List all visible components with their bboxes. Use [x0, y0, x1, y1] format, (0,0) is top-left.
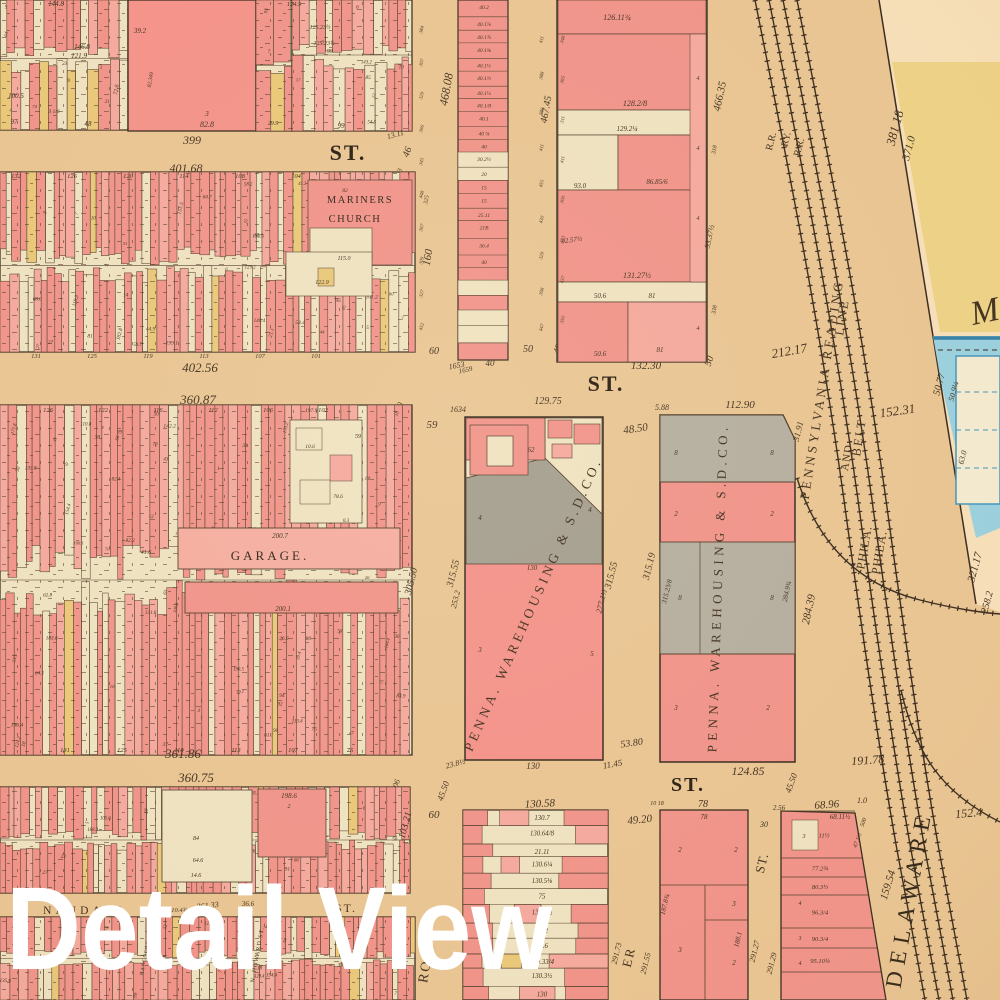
svg-text:4: 4 — [588, 506, 592, 514]
svg-text:40.1⅔: 40.1⅔ — [477, 75, 492, 82]
svg-text:130: 130 — [526, 761, 540, 771]
svg-text:38: 38 — [93, 435, 100, 441]
svg-text:60: 60 — [429, 346, 439, 357]
svg-text:10: 10 — [91, 217, 96, 222]
svg-text:6: 6 — [363, 806, 366, 812]
svg-text:125.23½: 125.23½ — [310, 24, 332, 31]
svg-text:40.1: 40.1 — [479, 115, 489, 122]
svg-text:40.1½: 40.1½ — [477, 62, 491, 69]
svg-text:146.8: 146.8 — [74, 43, 90, 51]
svg-text:40.1⅝: 40.1⅝ — [477, 47, 491, 54]
svg-text:4: 4 — [697, 75, 700, 82]
svg-text:23: 23 — [62, 62, 67, 67]
svg-text:93.0: 93.0 — [574, 182, 587, 190]
svg-text:6: 6 — [356, 4, 359, 10]
svg-text:399: 399 — [182, 133, 201, 147]
svg-text:3: 3 — [731, 900, 736, 908]
svg-text:75: 75 — [311, 726, 317, 732]
svg-text:81: 81 — [87, 334, 93, 340]
svg-text:3: 3 — [673, 704, 678, 712]
svg-text:114: 114 — [179, 173, 189, 180]
svg-text:131.6: 131.6 — [145, 610, 157, 616]
svg-text:70: 70 — [105, 547, 110, 552]
svg-text:33: 33 — [242, 444, 247, 449]
svg-text:120: 120 — [123, 173, 134, 180]
svg-text:ST.: ST. — [330, 140, 367, 165]
svg-text:4: 4 — [697, 145, 700, 152]
svg-text:2: 2 — [732, 959, 736, 967]
svg-text:92: 92 — [277, 702, 283, 708]
svg-text:3: 3 — [802, 834, 806, 840]
svg-text:48: 48 — [85, 120, 93, 128]
svg-text:74: 74 — [32, 104, 37, 109]
svg-text:131: 131 — [60, 747, 70, 754]
svg-text:41.6: 41.6 — [141, 549, 152, 556]
svg-text:130: 130 — [527, 564, 538, 572]
svg-text:130.58: 130.58 — [524, 797, 555, 811]
svg-text:40: 40 — [481, 259, 487, 266]
svg-text:37: 37 — [296, 78, 301, 83]
svg-text:ST.: ST. — [588, 371, 625, 396]
svg-text:41.3: 41.3 — [298, 182, 307, 187]
svg-text:40.2: 40.2 — [479, 4, 489, 11]
svg-text:99: 99 — [117, 430, 123, 436]
svg-text:113: 113 — [231, 747, 241, 754]
svg-text:97: 97 — [11, 118, 19, 126]
svg-text:107: 107 — [255, 353, 266, 360]
svg-text:4: 4 — [799, 960, 802, 967]
svg-text:40.1¾: 40.1¾ — [477, 34, 491, 41]
svg-text:51: 51 — [123, 241, 128, 246]
svg-text:188.3: 188.3 — [87, 828, 99, 833]
svg-text:3: 3 — [204, 110, 209, 118]
svg-text:68.11½: 68.11½ — [830, 813, 851, 821]
svg-text:86.85/6: 86.85/6 — [646, 178, 668, 186]
svg-text:190.5: 190.5 — [233, 667, 244, 672]
svg-text:58.2: 58.2 — [244, 182, 253, 187]
svg-text:82.4: 82.4 — [112, 477, 121, 482]
svg-text:30: 30 — [759, 820, 768, 829]
svg-text:2: 2 — [674, 510, 678, 518]
svg-text:15: 15 — [481, 185, 487, 191]
svg-text:79.1: 79.1 — [236, 689, 244, 694]
svg-text:30.2½: 30.2½ — [476, 156, 491, 163]
svg-text:40: 40 — [486, 358, 496, 368]
svg-text:102: 102 — [318, 407, 329, 414]
svg-text:197.9: 197.9 — [305, 408, 318, 414]
svg-text:140.4: 140.4 — [254, 317, 266, 324]
svg-text:26.6: 26.6 — [279, 636, 289, 642]
svg-text:131: 131 — [31, 353, 41, 360]
svg-text:40.1¼: 40.1¼ — [477, 90, 491, 97]
svg-text:115.0: 115.0 — [337, 256, 350, 262]
svg-text:152.4: 152.4 — [955, 805, 983, 821]
svg-text:8: 8 — [674, 449, 678, 457]
svg-text:27: 27 — [48, 340, 54, 346]
svg-text:5.88: 5.88 — [655, 403, 669, 412]
svg-text:80.3½: 80.3½ — [812, 884, 828, 891]
svg-text:106: 106 — [263, 407, 274, 414]
svg-text:44.9: 44.9 — [146, 325, 156, 332]
svg-text:84.7: 84.7 — [203, 195, 212, 200]
svg-text:40: 40 — [481, 144, 487, 151]
svg-text:3: 3 — [677, 946, 682, 954]
svg-text:2.56: 2.56 — [773, 804, 786, 812]
svg-text:196.4: 196.4 — [11, 721, 24, 728]
svg-text:15: 15 — [481, 199, 487, 205]
svg-text:56: 56 — [337, 629, 342, 634]
svg-text:125: 125 — [117, 747, 128, 754]
svg-text:6: 6 — [225, 267, 228, 273]
svg-text:60: 60 — [429, 809, 441, 821]
svg-text:30: 30 — [395, 635, 400, 640]
svg-text:2: 2 — [770, 510, 774, 518]
svg-text:198.6: 198.6 — [281, 792, 297, 800]
svg-text:77.2¾: 77.2¾ — [812, 866, 828, 873]
svg-text:21: 21 — [105, 99, 111, 105]
svg-text:1: 1 — [217, 467, 220, 472]
svg-text:361.86: 361.86 — [164, 746, 201, 761]
svg-text:68.6: 68.6 — [33, 296, 42, 302]
svg-text:82: 82 — [342, 188, 348, 194]
svg-text:142.2: 142.2 — [163, 422, 176, 429]
svg-text:90.3/4: 90.3/4 — [812, 936, 829, 943]
svg-text:64.3: 64.3 — [35, 672, 44, 677]
svg-text:62: 62 — [528, 446, 536, 454]
svg-text:100.5: 100.5 — [8, 92, 24, 100]
svg-text:80: 80 — [306, 636, 312, 642]
svg-text:ST.: ST. — [671, 774, 705, 796]
svg-text:0.3: 0.3 — [343, 519, 350, 524]
svg-text:130.64/8: 130.64/8 — [530, 831, 555, 838]
svg-text:113: 113 — [199, 353, 209, 360]
svg-text:43: 43 — [163, 458, 169, 463]
svg-text:2: 2 — [766, 704, 770, 712]
svg-text:Detail View: Detail View — [6, 863, 553, 995]
svg-text:21.11: 21.11 — [535, 849, 550, 856]
svg-text:61.1: 61.1 — [264, 733, 274, 739]
svg-text:5: 5 — [366, 325, 369, 331]
svg-text:1: 1 — [100, 66, 102, 71]
svg-text:126: 126 — [67, 173, 78, 180]
svg-text:8: 8 — [770, 449, 774, 457]
svg-text:59.7: 59.7 — [133, 343, 142, 348]
svg-text:82.2: 82.2 — [125, 538, 135, 544]
svg-text:79: 79 — [153, 443, 158, 448]
svg-text:1.0: 1.0 — [857, 796, 867, 805]
svg-text:183.6: 183.6 — [46, 635, 58, 641]
svg-text:99: 99 — [327, 49, 333, 55]
svg-text:112: 112 — [208, 407, 218, 414]
svg-text:MARINERS: MARINERS — [327, 195, 393, 206]
svg-text:82.8: 82.8 — [200, 120, 214, 129]
svg-text:112.90: 112.90 — [725, 399, 755, 411]
svg-text:29.9: 29.9 — [268, 121, 279, 127]
svg-text:143.2: 143.2 — [361, 60, 373, 65]
svg-text:105.6: 105.6 — [100, 817, 111, 822]
svg-text:4: 4 — [799, 900, 802, 907]
svg-text:68.96: 68.96 — [814, 798, 840, 812]
svg-text:10: 10 — [399, 64, 405, 70]
svg-text:104: 104 — [291, 173, 302, 180]
svg-text:124.85: 124.85 — [732, 764, 765, 778]
svg-text:78: 78 — [698, 799, 708, 810]
svg-text:5: 5 — [590, 650, 594, 658]
svg-text:59: 59 — [355, 434, 361, 440]
svg-text:129.75: 129.75 — [534, 396, 562, 407]
svg-text:96.3/4: 96.3/4 — [812, 910, 829, 917]
svg-text:122.9: 122.9 — [315, 280, 329, 286]
svg-text:3: 3 — [798, 936, 802, 942]
svg-text:20: 20 — [481, 172, 487, 178]
svg-text:119: 119 — [143, 353, 153, 360]
svg-text:129.2: 129.2 — [245, 266, 257, 271]
svg-text:53.4: 53.4 — [295, 319, 305, 326]
svg-text:40 ⅞: 40 ⅞ — [479, 130, 490, 137]
svg-text:26: 26 — [365, 575, 370, 580]
svg-text:25.11: 25.11 — [478, 213, 490, 219]
svg-text:125.23¾: 125.23¾ — [314, 41, 336, 47]
svg-text:59: 59 — [427, 419, 439, 431]
svg-text:84: 84 — [193, 835, 199, 842]
svg-text:133.8: 133.8 — [25, 466, 37, 472]
svg-text:130.7: 130.7 — [534, 815, 550, 822]
svg-text:62.8: 62.8 — [43, 592, 52, 598]
svg-text:21B: 21B — [480, 226, 490, 232]
svg-text:107: 107 — [288, 747, 299, 754]
svg-text:95.10¾: 95.10¾ — [810, 958, 830, 965]
svg-text:95: 95 — [335, 298, 341, 304]
svg-text:40.1⅞: 40.1⅞ — [477, 21, 491, 28]
svg-text:360.75: 360.75 — [177, 770, 214, 785]
svg-text:132: 132 — [11, 173, 22, 180]
svg-text:39.2: 39.2 — [133, 27, 147, 35]
svg-text:128.2/8: 128.2/8 — [623, 99, 647, 108]
svg-text:8: 8 — [678, 594, 682, 602]
svg-text:GARAGE.: GARAGE. — [231, 548, 309, 563]
svg-text:110.8: 110.8 — [80, 422, 91, 427]
svg-text:14: 14 — [123, 292, 129, 298]
svg-text:99: 99 — [338, 122, 346, 130]
svg-text:131.27½: 131.27½ — [623, 271, 651, 280]
svg-text:402.56: 402.56 — [182, 360, 218, 375]
svg-text:85: 85 — [366, 75, 372, 81]
svg-text:3 1/6: 3 1/6 — [47, 109, 59, 115]
svg-text:4: 4 — [697, 325, 700, 332]
svg-text:109.1: 109.1 — [74, 540, 84, 545]
svg-text:129.2¼: 129.2¼ — [617, 125, 639, 133]
svg-text:78.6: 78.6 — [333, 494, 343, 500]
svg-text:44: 44 — [320, 329, 325, 334]
svg-text:8: 8 — [770, 594, 774, 602]
svg-text:4: 4 — [478, 514, 482, 522]
svg-text:192.5: 192.5 — [252, 234, 264, 240]
svg-text:122: 122 — [98, 407, 109, 414]
svg-text:126: 126 — [43, 407, 54, 414]
svg-text:47: 47 — [349, 732, 354, 737]
svg-text:200.1: 200.1 — [275, 605, 291, 613]
svg-text:76: 76 — [347, 747, 354, 754]
svg-text:101: 101 — [311, 353, 321, 360]
svg-text:3: 3 — [477, 646, 482, 654]
svg-text:50: 50 — [523, 344, 533, 355]
svg-text:10: 10 — [110, 685, 115, 690]
svg-text:40.1/8: 40.1/8 — [477, 102, 491, 109]
svg-text:121.9: 121.9 — [71, 52, 87, 60]
svg-text:50.6: 50.6 — [594, 350, 607, 358]
svg-text:2: 2 — [288, 804, 291, 810]
svg-text:84.9: 84.9 — [396, 693, 405, 700]
svg-text:50.6: 50.6 — [594, 292, 607, 300]
svg-text:94: 94 — [279, 692, 285, 699]
svg-text:10.6: 10.6 — [305, 444, 315, 450]
svg-text:CHURCH: CHURCH — [329, 214, 382, 225]
svg-text:124.9: 124.9 — [287, 1, 302, 8]
svg-text:90: 90 — [273, 729, 278, 734]
svg-text:12: 12 — [149, 515, 154, 520]
svg-text:81: 81 — [649, 292, 656, 300]
svg-text:2: 2 — [734, 846, 738, 854]
svg-text:81: 81 — [657, 346, 664, 354]
svg-text:54.5: 54.5 — [367, 121, 376, 126]
svg-text:60: 60 — [365, 477, 370, 482]
svg-text:191.78: 191.78 — [851, 752, 885, 768]
svg-text:200.7: 200.7 — [272, 532, 288, 540]
svg-text:144.8: 144.8 — [48, 0, 64, 8]
svg-text:2: 2 — [678, 846, 682, 854]
svg-text:78: 78 — [701, 813, 709, 821]
svg-text:36.4: 36.4 — [478, 243, 489, 250]
svg-text:116: 116 — [153, 407, 163, 414]
svg-text:125: 125 — [87, 353, 98, 360]
svg-text:10 18: 10 18 — [650, 801, 664, 807]
svg-text:126.11¾: 126.11¾ — [603, 13, 630, 22]
svg-text:23: 23 — [61, 855, 66, 860]
svg-text:80: 80 — [389, 291, 394, 296]
svg-text:113.4: 113.4 — [292, 719, 303, 724]
svg-text:4: 4 — [697, 215, 700, 222]
svg-text:199.1: 199.1 — [166, 341, 179, 347]
svg-text:108: 108 — [235, 173, 246, 180]
svg-text:1634: 1634 — [450, 405, 466, 414]
